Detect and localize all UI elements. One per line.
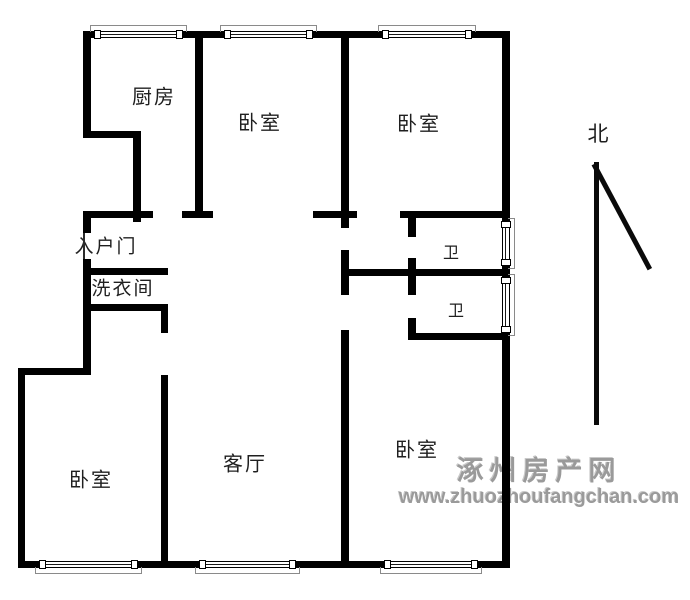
wall-outer-left-mid [83, 259, 91, 375]
wall-kitchen-bedroom-divider-v [195, 31, 203, 218]
window-glass-line [505, 224, 506, 263]
room-label-bath-lower: 卫 [448, 297, 466, 321]
window-outer-sill [220, 25, 317, 32]
room-label-bedroom-bottom-right: 卧室 [395, 434, 439, 463]
wall-bath-bottom-h [408, 333, 510, 340]
entry-door-opening-line [83, 233, 85, 259]
wall-bath-divider-h [341, 269, 510, 276]
room-label-bedroom-bottom-left: 卧室 [69, 464, 113, 493]
wall-central-divider-mid-v [341, 250, 349, 295]
north-arrow-line [594, 162, 599, 425]
wall-bath-top-h [400, 211, 510, 218]
window-outer-sill [380, 567, 482, 574]
window-outer-sill [90, 25, 187, 32]
room-label-bath-upper: 卫 [443, 239, 461, 263]
room-label-living-room: 客厅 [223, 448, 267, 477]
wall-bath-door-stub-upper-v [408, 218, 416, 237]
window-outer-sill [195, 567, 300, 574]
room-label-bedroom-top-middle: 卧室 [238, 107, 282, 136]
window-glass-line [42, 564, 135, 565]
room-label-bedroom-top-right: 卧室 [397, 108, 441, 137]
wall-entry-top-h [83, 211, 153, 218]
window-glass-line [227, 34, 310, 35]
wall-laundry-bottom-h [83, 304, 168, 311]
window-glass-line [202, 564, 293, 565]
watermark: 涿州房产网 www.zhuozhoufangchan.com [399, 457, 679, 509]
wall-bedroom-bottom-stub-h [313, 211, 357, 218]
window-glass-line [97, 34, 180, 35]
window-outer-sill [378, 25, 476, 32]
room-label-laundry: 洗衣间 [91, 274, 154, 301]
north-arrow-diagonal [592, 163, 652, 270]
floor-plan: 北 涿州房产网 www.zhuozhoufangchan.com 厨房卧室卧室入… [0, 0, 690, 600]
north-label: 北 [588, 118, 609, 148]
window-outer-sill [508, 274, 515, 336]
window-outer-sill [35, 567, 142, 574]
watermark-site-name: 涿州房产网 [399, 457, 679, 485]
wall-bedroom-living-divider-v [161, 375, 168, 568]
window-glass-line [505, 280, 506, 330]
wall-laundry-right-v [161, 304, 168, 333]
watermark-site-url: www.zhuozhoufangchan.com [399, 485, 679, 509]
window-glass-line [385, 34, 469, 35]
wall-central-divider-lower-v [341, 330, 349, 568]
room-label-kitchen: 厨房 [132, 81, 176, 110]
wall-bath-wall-mid-v [408, 258, 416, 295]
wall-kitchen-step-v [133, 131, 141, 222]
wall-outer-left-lower [18, 368, 25, 568]
window-outer-sill [508, 218, 515, 269]
wall-left-jut-h [18, 368, 91, 375]
window-glass-line [387, 564, 475, 565]
wall-outer-left-upper [83, 31, 91, 138]
wall-outer-left-entry [83, 211, 91, 233]
wall-kitchen-divider-foot-h [182, 211, 213, 218]
wall-central-divider-upper-v [341, 31, 349, 228]
